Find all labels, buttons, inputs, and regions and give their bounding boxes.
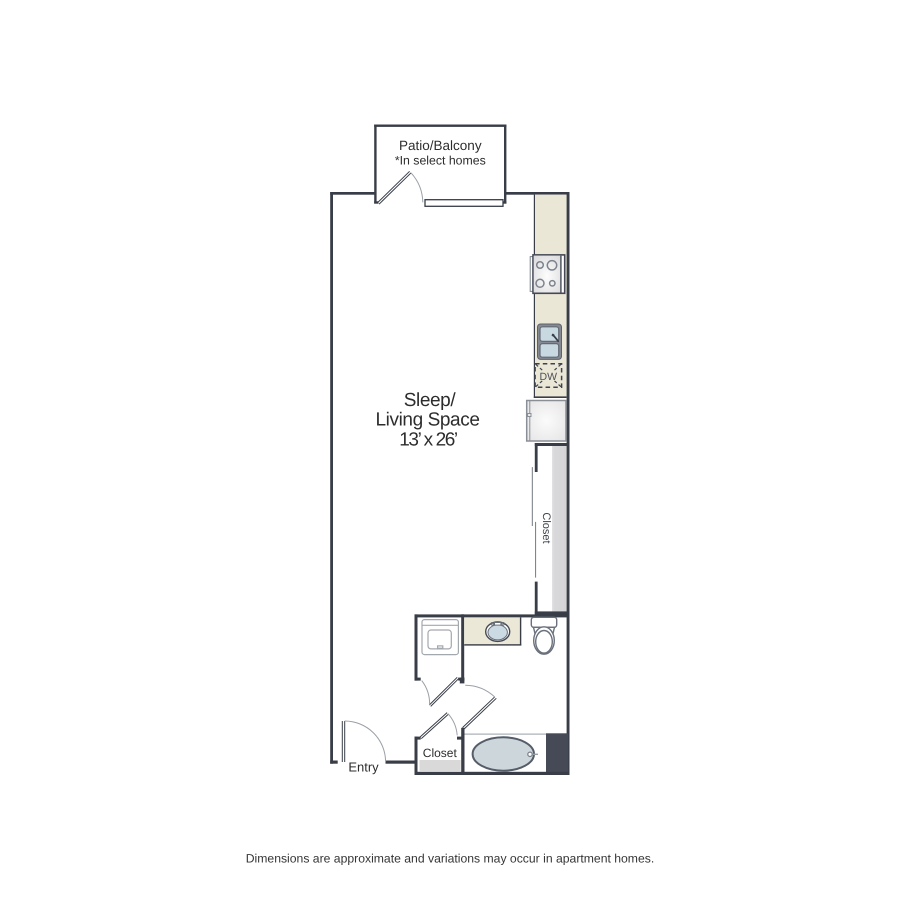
svg-text:Entry: Entry [348,760,379,775]
svg-text:Sleep/: Sleep/ [404,390,457,411]
svg-text:Living Space: Living Space [376,410,480,431]
svg-text:Closet: Closet [540,512,552,543]
svg-text:DW: DW [540,371,558,383]
svg-text:Patio/Balcony: Patio/Balcony [399,138,482,153]
svg-text:13’ x 26’: 13’ x 26’ [399,430,458,451]
svg-text:*In select homes: *In select homes [395,154,486,168]
svg-text:Closet: Closet [423,746,458,760]
svg-text:Dimensions are approximate and: Dimensions are approximate and variation… [246,852,654,866]
